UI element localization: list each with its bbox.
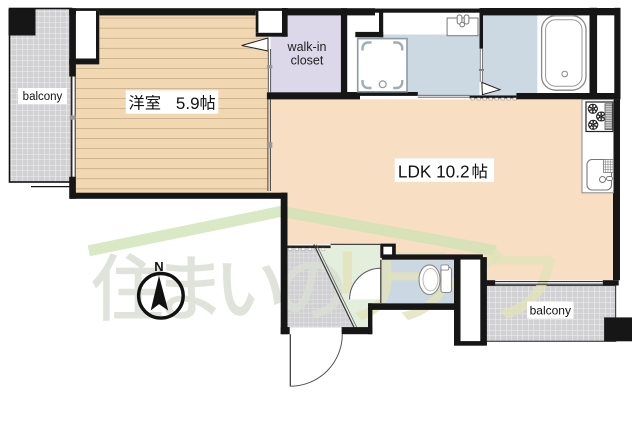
svg-text:N: N [154, 259, 163, 274]
svg-text:balcony: balcony [530, 304, 571, 318]
svg-text:5.9: 5.9 [176, 94, 200, 113]
svg-text:walk-in: walk-in [287, 40, 327, 54]
svg-text:LDK 10.2: LDK 10.2 [398, 161, 470, 181]
svg-text:balcony: balcony [23, 91, 63, 103]
svg-text:closet: closet [291, 54, 324, 68]
